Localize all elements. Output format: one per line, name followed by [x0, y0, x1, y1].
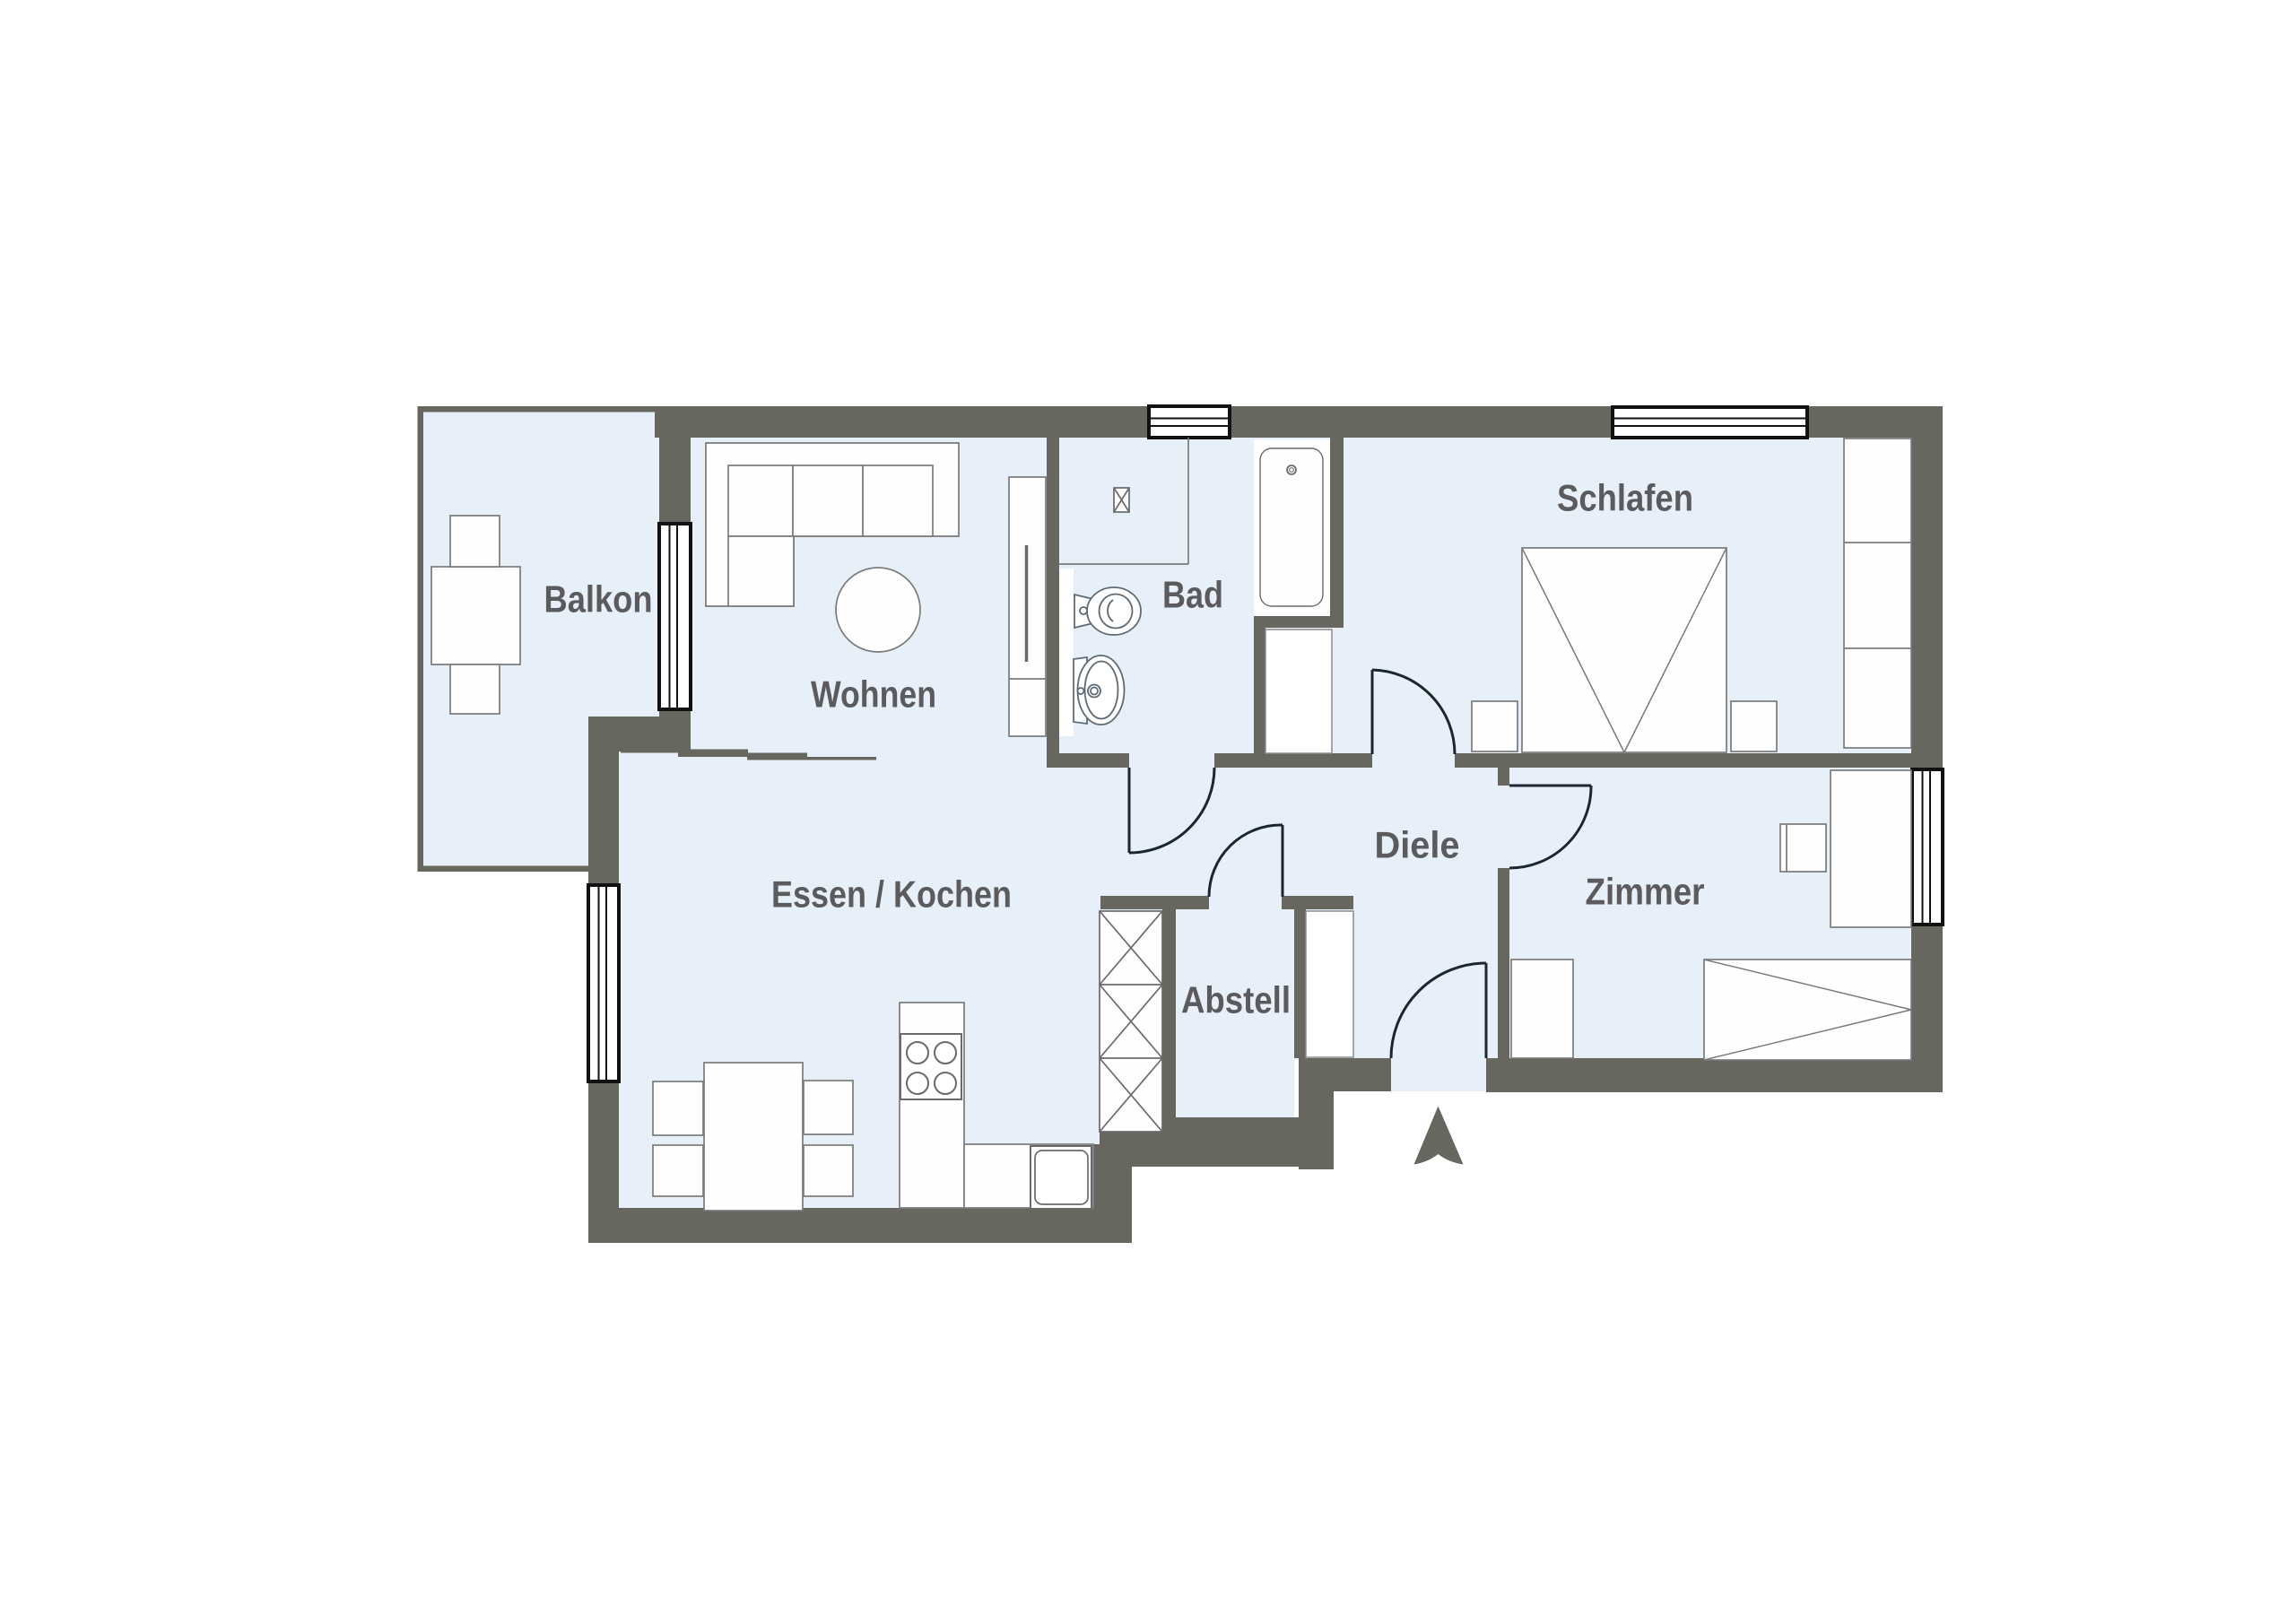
svg-text:Wohnen: Wohnen — [811, 673, 936, 716]
svg-text:Diele: Diele — [1375, 824, 1460, 866]
svg-text:Essen / Kochen: Essen / Kochen — [771, 873, 1012, 916]
svg-text:Zimmer: Zimmer — [1586, 871, 1705, 913]
svg-text:Balkon: Balkon — [544, 578, 653, 621]
svg-text:Bad: Bad — [1162, 574, 1223, 616]
svg-text:Abstell: Abstell — [1181, 979, 1291, 1021]
svg-text:Schlafen: Schlafen — [1557, 477, 1693, 519]
